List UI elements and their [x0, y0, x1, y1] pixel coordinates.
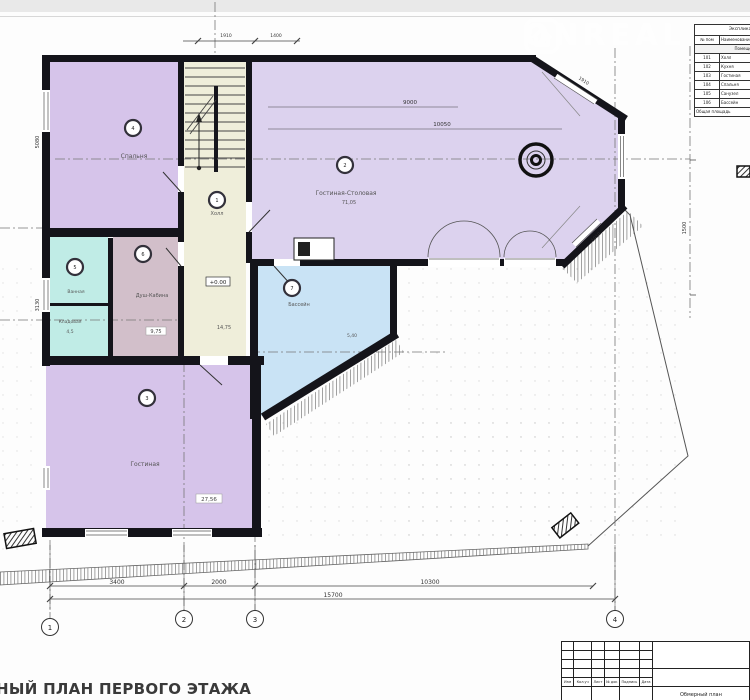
svg-text:6: 6 — [141, 252, 144, 258]
title-block-label: Дата — [640, 678, 653, 687]
schedule-cell: 105 — [695, 90, 720, 99]
room-area: 14,75 — [217, 325, 231, 331]
dim-label: 10050 — [433, 122, 451, 128]
dim-label: 5080 — [35, 136, 41, 149]
title-block-label: Изм — [562, 678, 574, 687]
schedule-col-no: № пом — [695, 36, 720, 45]
title-block-label: Лист — [592, 678, 605, 687]
schedule-col-name: Наименование — [720, 36, 750, 45]
title-block-label: Подпись — [619, 678, 639, 687]
badge-hall: 1 — [209, 192, 225, 208]
dim-label: 1500 — [682, 222, 688, 235]
schedule-cell: 101 — [695, 54, 720, 63]
svg-text:3: 3 — [145, 396, 148, 402]
room-label-storage: Кладовая — [59, 319, 82, 325]
room-label-living-dining: Гостиная-Столовая — [315, 190, 376, 197]
svg-text:4: 4 — [131, 126, 134, 132]
floorplan-page: 1 2 3 4 3400 2000 10300 15700 1910 1400 … — [0, 0, 750, 700]
room-label-shower: Душ-Кабина — [136, 293, 169, 299]
axis-label: 3 — [253, 616, 257, 624]
room-area: 4,5 — [66, 329, 73, 335]
room-bath — [50, 237, 108, 357]
schedule-cell: Кухня — [720, 63, 750, 72]
terrace-hatch-band-bottom — [0, 544, 588, 585]
badge-bath: 5 — [67, 259, 83, 275]
badge-bedroom: 4 — [125, 120, 141, 136]
badge-pool: 7 — [284, 280, 300, 296]
title-block-label: № док — [604, 678, 619, 687]
badge-shower: 6 — [135, 246, 151, 262]
dim-label: 9000 — [403, 100, 417, 106]
schedule-cell: 102 — [695, 63, 720, 72]
room-bedroom — [50, 62, 178, 230]
room-label-pool: Бассейн — [288, 301, 310, 308]
schedule-cell: Гостиная — [720, 72, 750, 81]
svg-text:5: 5 — [73, 265, 76, 271]
room-schedule-table: Экспликация помещений № пом Наименование… — [694, 24, 750, 117]
dim-label: 3400 — [109, 579, 124, 586]
schedule-cell: 104 — [695, 81, 720, 90]
room-label-bath: Ванная — [67, 289, 84, 295]
svg-text:2: 2 — [343, 163, 346, 169]
schedule-cell: Спальня — [720, 81, 750, 90]
room-label-living2: Гостиная — [130, 461, 160, 468]
axis-label: 2 — [182, 616, 186, 624]
schedule-title: Экспликация помещений — [695, 25, 750, 36]
marker-box — [737, 166, 750, 177]
axis-label: 1 — [48, 624, 52, 632]
title-block-blank — [652, 642, 749, 669]
schedule-cell: 106 — [695, 99, 720, 108]
dim-label: 10300 — [420, 579, 439, 586]
badge-living2: 3 — [139, 390, 155, 406]
dim-label: 3130 — [35, 299, 41, 312]
room-area: 71,05 — [342, 200, 356, 206]
schedule-cell: Холл — [720, 54, 750, 63]
room-area: 5,40 — [347, 333, 357, 339]
svg-text:1: 1 — [215, 198, 218, 204]
schedule-cell: 103 — [695, 72, 720, 81]
elevation-mark: +0.00 — [210, 280, 227, 286]
drawing-title: НЫЙ ПЛАН ПЕРВОГО ЭТАЖА — [0, 680, 251, 698]
title-block-note: Обмерный план — [652, 687, 749, 700]
dim-label: 1400 — [270, 33, 282, 39]
dim-label: 1910 — [220, 33, 232, 39]
room-living2 — [46, 364, 252, 529]
floor-plan-svg: 1 2 3 4 3400 2000 10300 15700 1910 1400 … — [0, 0, 750, 700]
schedule-footer: Общая площадь — [695, 108, 750, 117]
schedule-band: Помещения 1-го этажа — [695, 45, 750, 54]
schedule-cell: Бассейн — [720, 99, 750, 108]
badge-living-dining: 2 — [337, 157, 353, 173]
room-area: 27,56 — [201, 497, 217, 503]
dim-label: 15700 — [323, 592, 342, 599]
room-label-hall: Холл — [211, 211, 224, 217]
axis-bubbles: 1 2 3 4 — [42, 611, 624, 636]
room-label-bedroom: Спальня — [121, 153, 148, 160]
title-block: Изм Кол.уч Лист № док Подпись Дата Обмер… — [561, 641, 750, 700]
axis-label: 4 — [613, 616, 618, 624]
schedule-cell: Санузел — [720, 90, 750, 99]
title-block-label: Кол.уч — [574, 678, 592, 687]
dim-label: 2000 — [211, 579, 226, 586]
room-area: 9,75 — [150, 329, 161, 335]
svg-text:7: 7 — [290, 286, 293, 292]
